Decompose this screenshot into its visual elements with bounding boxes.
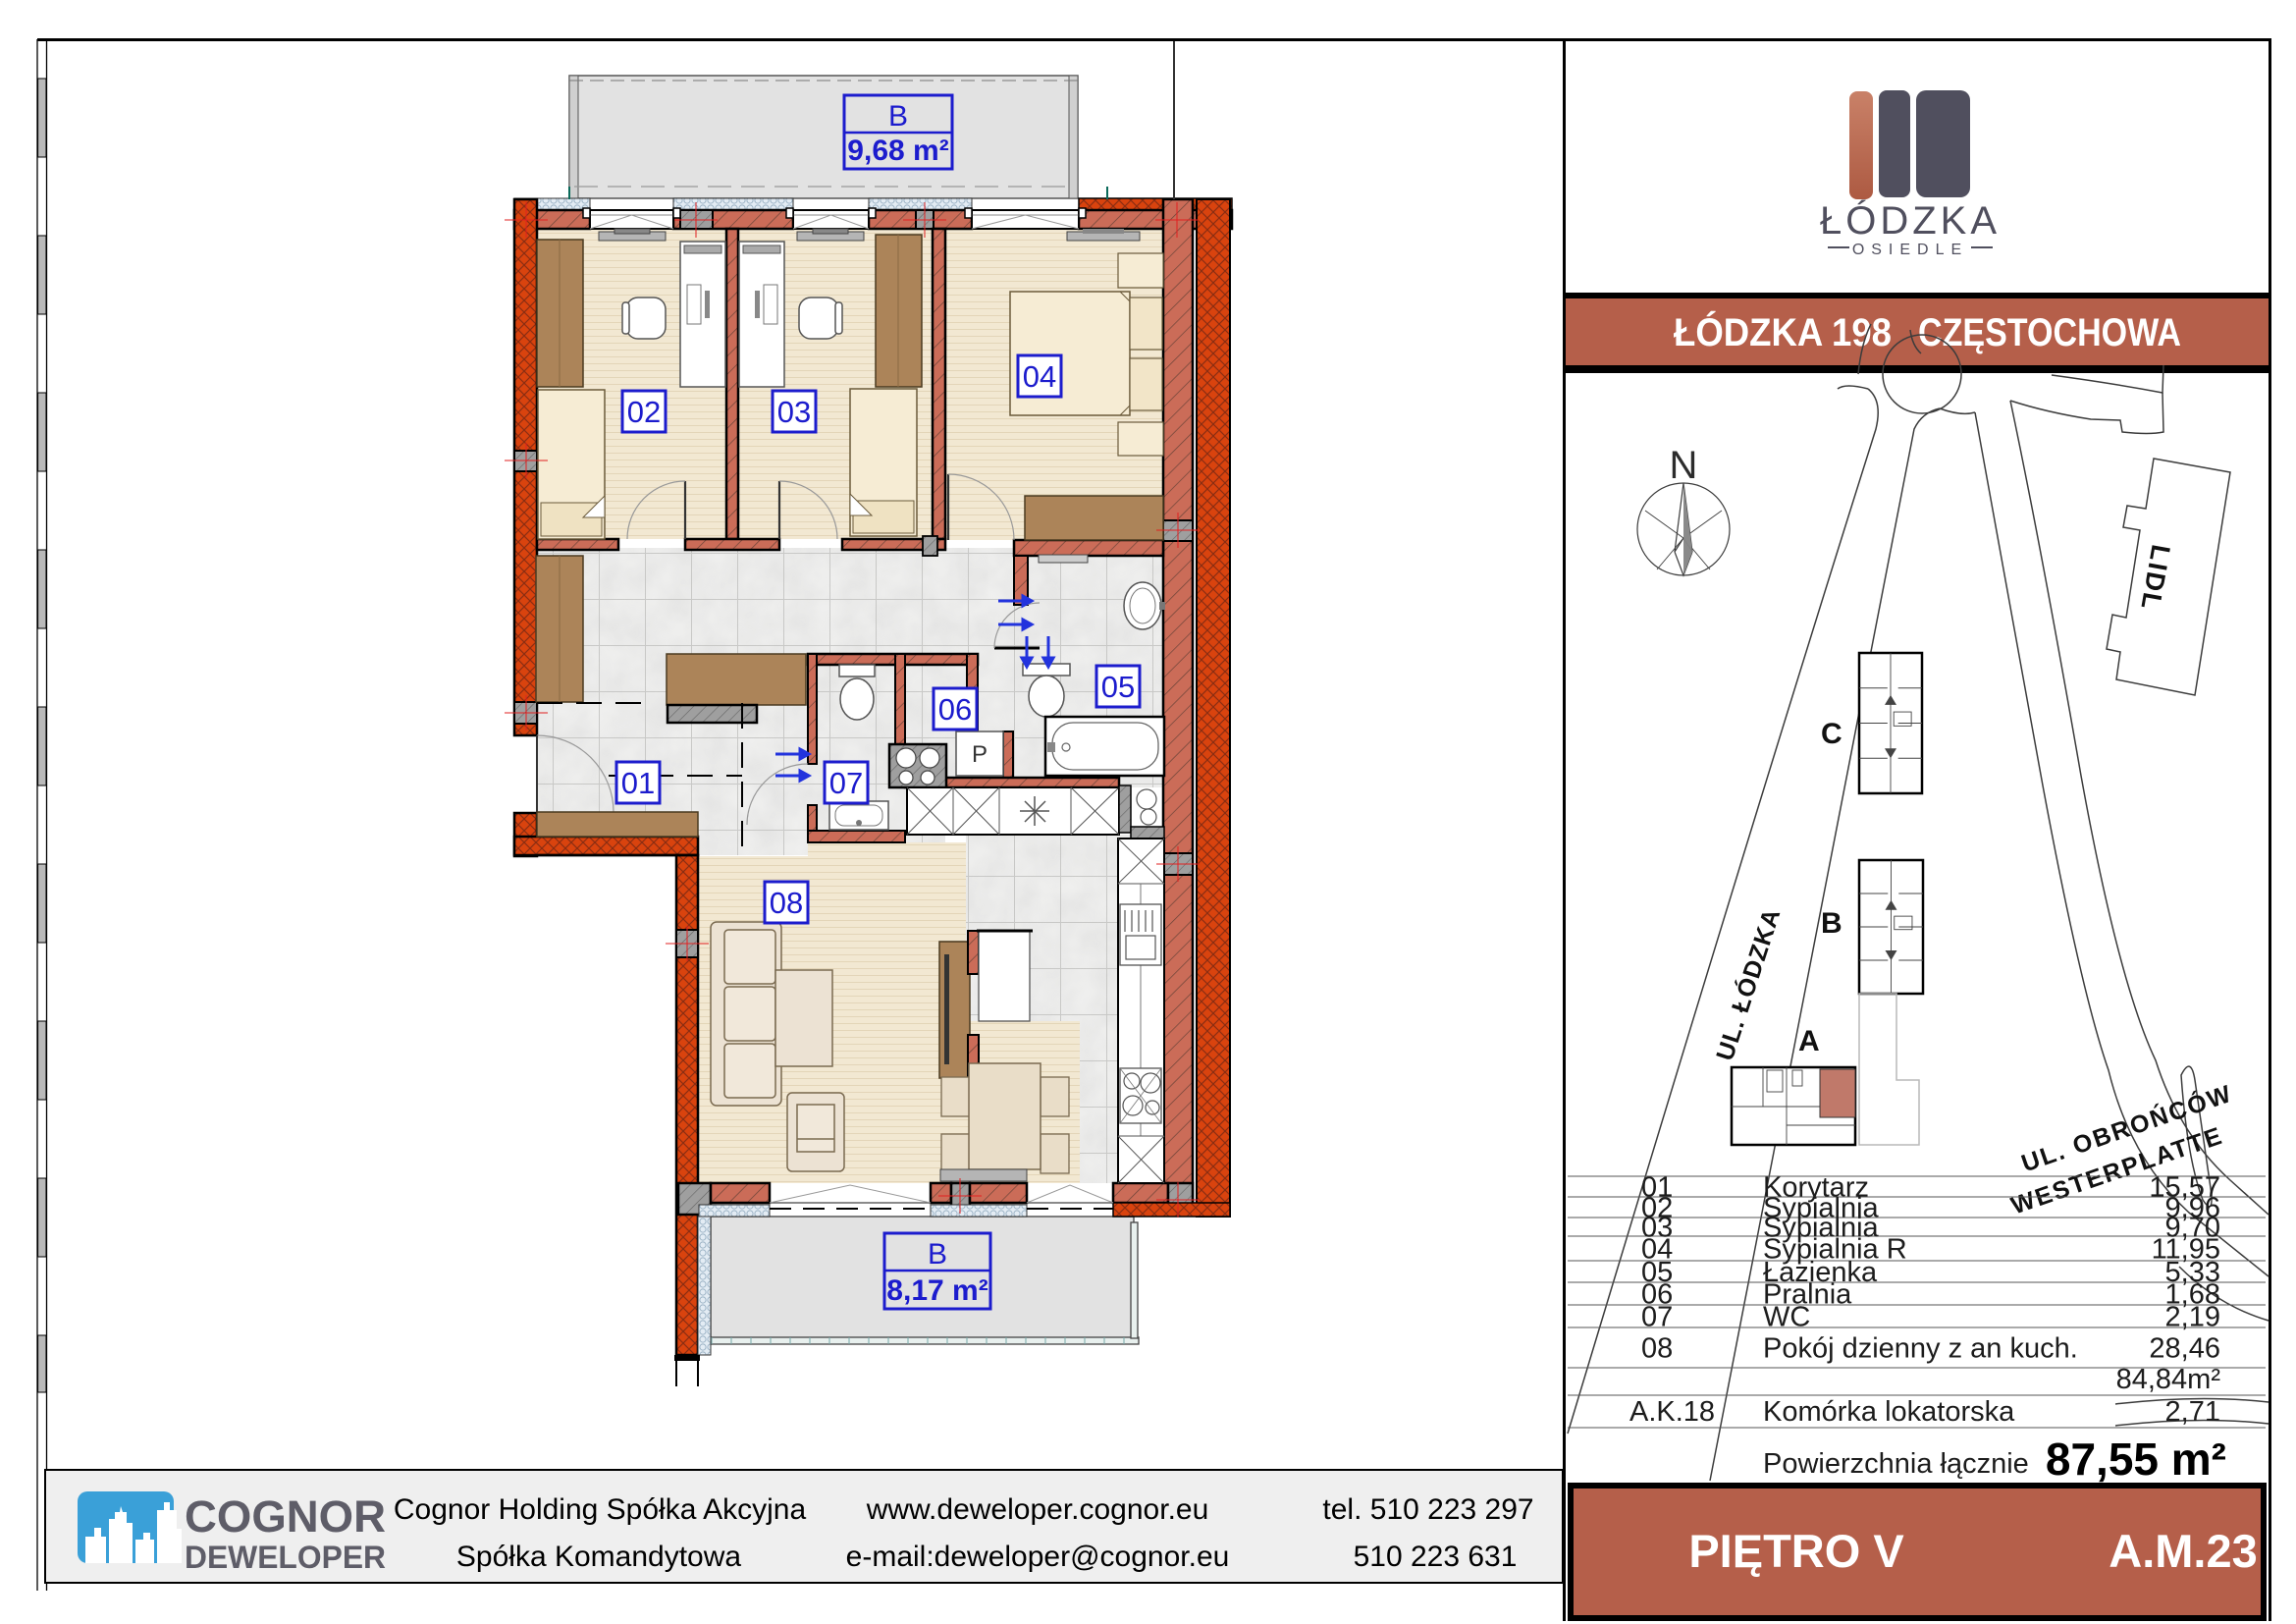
svg-text:8,17 m²: 8,17 m²	[886, 1274, 988, 1307]
svg-text:05: 05	[1101, 670, 1135, 704]
svg-text:9,68 m²: 9,68 m²	[847, 135, 948, 167]
svg-text:e-mail:deweloper@cognor.eu: e-mail:deweloper@cognor.eu	[846, 1541, 1230, 1573]
svg-text:2,19: 2,19	[2165, 1302, 2220, 1333]
svg-text:08: 08	[1641, 1333, 1673, 1365]
svg-text:06: 06	[938, 692, 972, 727]
svg-text:28,46: 28,46	[2149, 1333, 2220, 1365]
svg-text:ŁÓDZKA 198: ŁÓDZKA 198	[1674, 309, 1892, 354]
svg-text:P: P	[972, 741, 988, 768]
svg-text:A.K.18: A.K.18	[1629, 1396, 1715, 1428]
svg-text:Spółka Komandytowa: Spółka Komandytowa	[456, 1541, 741, 1573]
svg-text:C: C	[1821, 718, 1842, 750]
svg-text:03: 03	[777, 395, 811, 429]
svg-text:A.M.23: A.M.23	[2109, 1525, 2258, 1577]
svg-text:OSIEDLE: OSIEDLE	[1852, 242, 1968, 258]
svg-text:07: 07	[829, 766, 863, 800]
svg-text:PIĘTRO V: PIĘTRO V	[1688, 1525, 1904, 1577]
svg-text:A: A	[1798, 1025, 1820, 1057]
svg-text:07: 07	[1641, 1302, 1673, 1333]
svg-text:04: 04	[1023, 359, 1056, 394]
svg-text:87,55 m²: 87,55 m²	[2046, 1434, 2226, 1485]
svg-text:Cognor Holding Spółka Akcyjna: Cognor Holding Spółka Akcyjna	[394, 1493, 807, 1526]
svg-text:Pokój dzienny z an kuch.: Pokój dzienny z an kuch.	[1763, 1333, 2078, 1365]
svg-text:CZĘSTOCHOWA: CZĘSTOCHOWA	[1918, 311, 2181, 354]
svg-text:www.deweloper.cognor.eu: www.deweloper.cognor.eu	[866, 1493, 1209, 1526]
svg-text:84,84m²: 84,84m²	[2116, 1364, 2221, 1395]
svg-text:01: 01	[621, 766, 655, 800]
svg-text:Komórka lokatorska: Komórka lokatorska	[1763, 1396, 2015, 1428]
svg-text:B: B	[888, 100, 908, 133]
svg-text:510 223 631: 510 223 631	[1354, 1541, 1518, 1573]
svg-text:2,71: 2,71	[2165, 1396, 2220, 1428]
svg-text:Powierzchnia łącznie: Powierzchnia łącznie	[1763, 1448, 2029, 1480]
svg-text:08: 08	[770, 886, 803, 920]
svg-text:tel. 510 223 297: tel. 510 223 297	[1322, 1493, 1533, 1526]
svg-text:B: B	[928, 1238, 947, 1271]
svg-text:N: N	[1670, 444, 1698, 487]
svg-text:DEWELOPER: DEWELOPER	[185, 1540, 386, 1575]
svg-text:COGNOR: COGNOR	[185, 1491, 386, 1542]
svg-text:B: B	[1821, 907, 1842, 940]
svg-text:02: 02	[627, 395, 661, 429]
svg-text:ŁÓDZKA: ŁÓDZKA	[1820, 198, 2001, 243]
svg-text:WC: WC	[1763, 1302, 1810, 1333]
